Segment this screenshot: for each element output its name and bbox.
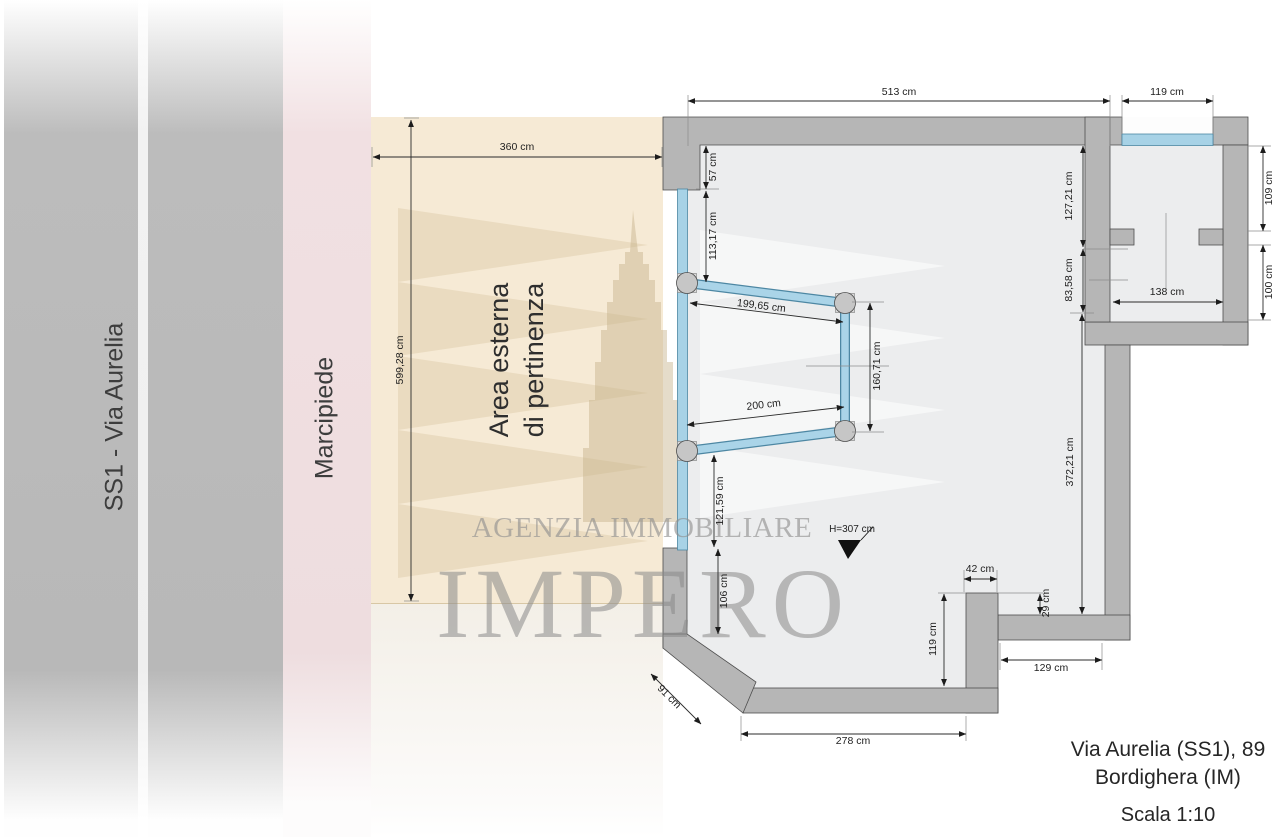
height-label: H=307 cm [829,524,875,535]
dimension-label: 121,59 cm [714,476,726,525]
wall-door-stub-left [1110,229,1134,245]
wall-window-right-jamb [1213,117,1248,145]
dimension-label: 513 cm [882,86,917,98]
dimension-label: 106 cm [718,574,730,609]
road-label: SS1 - Via Aurelia [101,323,130,512]
dimension-label: 138 cm [1150,286,1185,298]
tower-logo-watermark [583,210,685,522]
dimension-label: 113,17 cm [707,212,719,261]
dimension-label: 160,71 cm [871,341,883,390]
dimension-label: 119 cm [1150,86,1184,98]
dimension-label: 109 cm [1263,171,1275,206]
dimension-label: 372,21 cm [1064,437,1076,486]
dimension-label: 57 cm [707,152,719,181]
wall-right-outer [1223,145,1248,345]
external-area-label: Area esterna di pertinenza [482,283,552,438]
wall-main-right-lower [1105,345,1130,640]
watermark-agency-name: AGENZIA IMMOBILIARE [472,512,813,544]
wall-door-stub-right [1199,229,1223,245]
address-line-1: Via Aurelia (SS1), 89 [1008,736,1280,764]
wall-bottom-right [998,615,1130,640]
sidewalk-label: Marcipiede [311,357,340,479]
wall-rooms-bottom [1085,322,1248,345]
dimension-label: 42 cm [966,563,995,575]
dimension-label: 100 cm [1263,265,1275,300]
dimension-label: 119 cm [927,622,939,656]
dimension-label: 129 cm [1034,662,1069,674]
dimension-label: 83,58 cm [1063,258,1075,301]
dimension-label: 29 cm [1040,588,1052,617]
wall-bottom [743,688,998,713]
dimension-label: 278 cm [836,735,871,747]
dimension-label: 360 cm [500,141,535,153]
external-area-label-line2: di pertinenza [517,283,552,438]
watermark-text: AGENZIA IMMOBILIARE IMPERO [436,512,850,659]
address-line-2: Bordighera (IM) [1008,764,1280,792]
glass-top-window [1122,134,1213,146]
window-opening [1122,117,1213,135]
title-block: Via Aurelia (SS1), 89 Bordighera (IM) Sc… [1008,736,1280,829]
floorplan-drawing: AGENZIA IMMOBILIARE IMPERO [0,0,1280,837]
dimension-label: 127,21 cm [1063,171,1075,220]
external-area-label-line1: Area esterna [482,283,517,438]
dimension-label: 599,28 cm [394,335,406,384]
glass-left-wall [678,189,688,550]
dimension-label: 91 cm [655,683,684,712]
scale-label: Scala 1:10 [1008,802,1280,829]
floorplan-page: AGENZIA IMMOBILIARE IMPERO [0,0,1280,837]
watermark-brand-name: IMPERO [436,548,850,659]
wall-divider-vertical [1085,117,1110,322]
